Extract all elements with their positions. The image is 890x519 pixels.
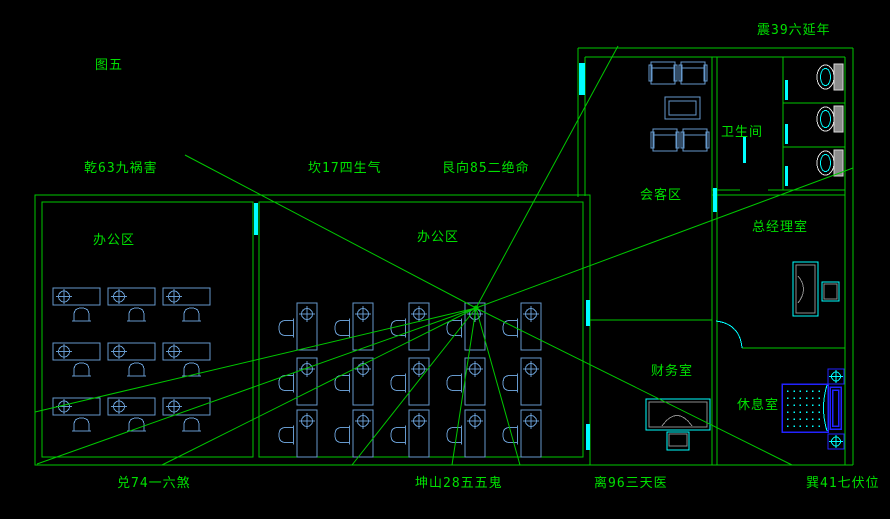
workstation-icon <box>391 410 429 457</box>
executive-office-furniture <box>793 262 839 316</box>
room-label-rest: 休息室 <box>737 399 779 413</box>
toilet-icon <box>817 150 843 176</box>
pillow-icon <box>830 387 841 429</box>
compass-label-e: 震39六延年 <box>757 24 831 38</box>
door-icon <box>743 137 746 163</box>
executive-chair-icon <box>822 282 839 301</box>
room-label-bathroom: 卫生间 <box>721 126 763 140</box>
bed-curve <box>824 385 828 431</box>
sofa-icon <box>651 129 679 151</box>
room-label-office-left: 办公区 <box>93 234 135 248</box>
coffee-table-icon <box>665 97 700 119</box>
workstation-icon <box>53 288 100 321</box>
finance-desk-icon <box>646 399 710 430</box>
workstation-icon <box>53 343 100 376</box>
survey-point-icon <box>828 369 844 384</box>
compass-label-se: 巽41七伏位 <box>806 477 880 491</box>
toilet-icon <box>817 106 843 132</box>
workstation-icon <box>163 343 210 376</box>
bathroom-fixtures <box>817 64 843 176</box>
sofa-icon <box>649 62 677 84</box>
workstation-icon <box>163 288 210 321</box>
floorplan-canvas: 图五 乾63九祸害 坎17四生气 艮向85二绝命 震39六延年 兑74一六煞 坤… <box>0 0 890 519</box>
workstation-icon <box>335 358 373 405</box>
executive-desk-icon <box>793 262 818 316</box>
toilet-icon <box>817 64 843 90</box>
room-label-meeting: 会客区 <box>640 189 682 203</box>
rest-room-furniture <box>782 369 844 449</box>
workstation-icon <box>391 358 429 405</box>
office-center-workstations <box>279 303 541 457</box>
workstation-icon <box>447 410 485 457</box>
compass-label-w: 兑74一六煞 <box>117 477 191 491</box>
sofa-icon <box>681 129 709 151</box>
door-icon <box>254 203 258 235</box>
workstation-icon <box>503 303 541 350</box>
sofa-icon <box>679 62 707 84</box>
finance-chair-icon <box>667 432 689 450</box>
window-icon <box>579 63 585 95</box>
door-icon <box>586 424 590 450</box>
workstation-icon <box>53 398 100 431</box>
bed-icon <box>782 384 828 432</box>
compass-label-nw: 乾63九祸害 <box>84 162 158 176</box>
walls <box>35 48 853 465</box>
workstation-icon <box>163 398 210 431</box>
room-label-finance: 财务室 <box>651 365 693 379</box>
workstation-icon <box>279 303 317 350</box>
workstation-icon <box>279 358 317 405</box>
survey-point-icon <box>828 434 844 449</box>
office-left-workstations <box>53 288 210 431</box>
door-swing-arc <box>716 321 742 348</box>
workstation-icon <box>108 288 155 321</box>
coffee-table-icon <box>669 101 696 115</box>
room-label-office-center: 办公区 <box>417 231 459 245</box>
figure-label: 图五 <box>95 59 123 73</box>
bed-dots <box>787 391 824 426</box>
room-label-executive: 总经理室 <box>752 221 808 235</box>
finance-office-furniture <box>646 399 710 450</box>
meeting-area-furniture <box>649 62 709 151</box>
stall-door-icon <box>785 80 788 100</box>
compass-label-sw: 坤山28五五鬼 <box>415 477 503 491</box>
compass-label-ne: 艮向85二绝命 <box>442 162 530 176</box>
compass-label-s: 离96三天医 <box>594 477 668 491</box>
stall-door-icon <box>785 166 788 186</box>
workstation-icon <box>335 303 373 350</box>
pillow-icon <box>833 390 839 426</box>
door-icon <box>713 188 717 212</box>
workstation-icon <box>279 410 317 457</box>
workstation-icon <box>503 410 541 457</box>
workstation-icon <box>503 358 541 405</box>
workstation-icon <box>447 358 485 405</box>
workstation-icon <box>108 343 155 376</box>
compass-label-n: 坎17四生气 <box>308 162 382 176</box>
compass-center-point <box>474 306 479 311</box>
stall-door-icon <box>785 124 788 144</box>
workstation-icon <box>335 410 373 457</box>
workstation-icon <box>108 398 155 431</box>
fengshui-rays <box>35 46 853 465</box>
door-icon <box>586 300 590 326</box>
